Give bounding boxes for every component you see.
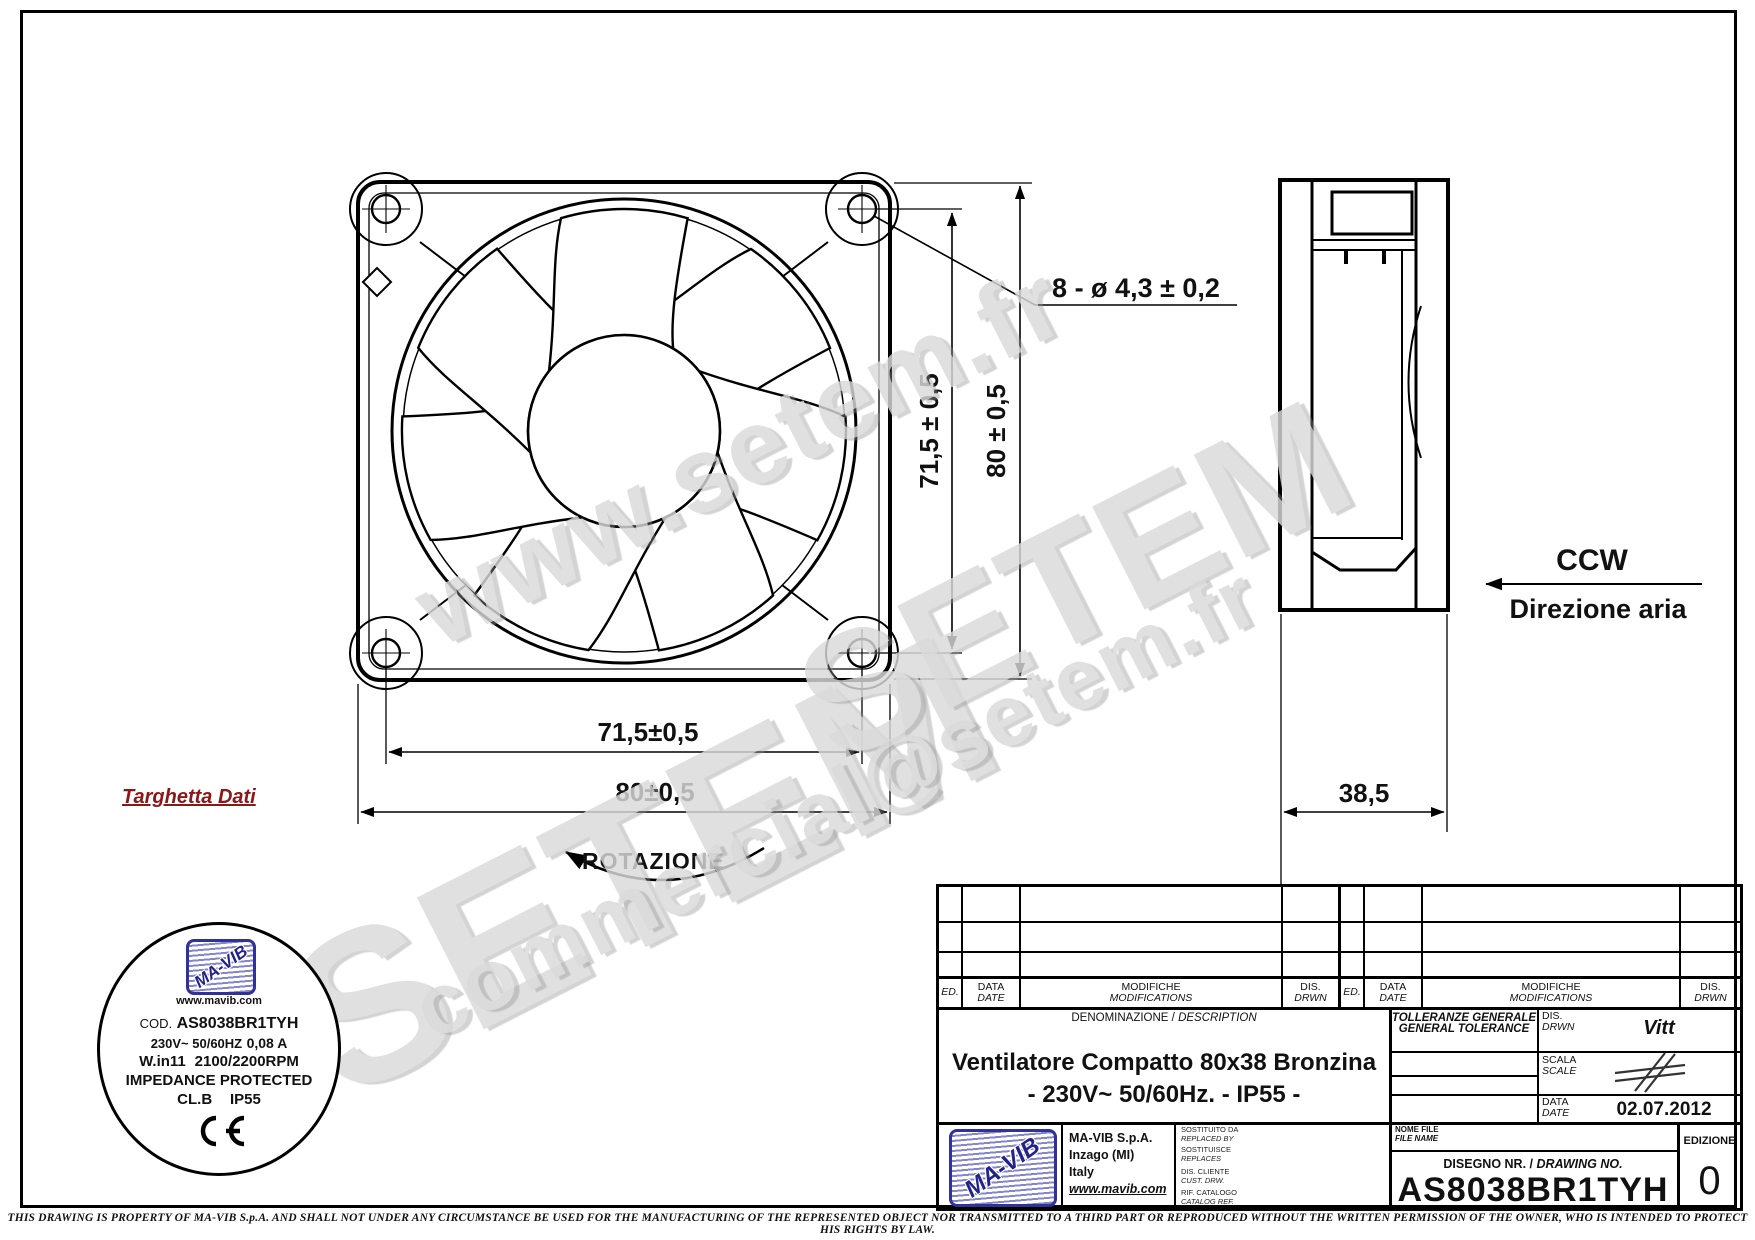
mavib-logo: MA-VIB bbox=[186, 939, 256, 995]
data-plate-caption: Targhetta Dati bbox=[122, 786, 256, 809]
front-view bbox=[350, 156, 898, 689]
drawn-drwn: DRWN bbox=[1542, 1021, 1574, 1033]
plate-voltage: 230V~ 50/60HZ bbox=[151, 1036, 242, 1051]
drawing-no-label-en: DRAWING NO. bbox=[1536, 1157, 1622, 1171]
data-plate: MA-VIB www.mavib.com COD. AS8038BR1TYH 2… bbox=[97, 922, 341, 1176]
rev1-date: DATA DATE bbox=[963, 982, 1019, 1004]
pitch-horizontal-text: 71,5±0,5 bbox=[597, 717, 698, 747]
company-country: Italy bbox=[1069, 1164, 1173, 1181]
plate-speed: 2100/2200RPM bbox=[195, 1053, 299, 1070]
rev1-drwn-en: DRWN bbox=[1294, 992, 1326, 1004]
size-horizontal-text: 80±0,5 bbox=[615, 777, 694, 807]
catalog-label: RIF. CATALOGO CATALOG REF. bbox=[1181, 1189, 1237, 1206]
rev2-dis: DIS. DRWN bbox=[1681, 982, 1740, 1004]
denom-it: DENOMINAZIONE / bbox=[1071, 1012, 1175, 1024]
rev2-date: DATA DATE bbox=[1365, 982, 1421, 1004]
ce-mark-icon bbox=[192, 1113, 250, 1149]
replaces-en: REPLACES bbox=[1181, 1155, 1231, 1164]
filename-label: NOME FILE FILE NAME bbox=[1395, 1125, 1439, 1143]
rev1-mod-en: MODIFICATIONS bbox=[1110, 992, 1193, 1004]
tol-en: GENERAL TOLERANCE bbox=[1399, 1023, 1530, 1035]
plate-ip: IP55 bbox=[230, 1091, 261, 1108]
company-website: www.mavib.com bbox=[1069, 1181, 1173, 1198]
airflow-code-text: CCW bbox=[1556, 544, 1628, 577]
company-address: MA-VIB S.p.A. Inzago (MI) Italy www.mavi… bbox=[1069, 1130, 1173, 1198]
scala-en: SCALE bbox=[1542, 1065, 1576, 1077]
rev2-drwn-en: DRWN bbox=[1694, 992, 1726, 1004]
cust-drw-label: DIS. CLIENTE CUST. DRW. bbox=[1181, 1168, 1229, 1185]
plate-code-row: COD. AS8038BR1TYH bbox=[100, 1015, 338, 1033]
rev2-date-en: DATE bbox=[1379, 992, 1406, 1004]
depth-text: 38,5 bbox=[1339, 778, 1390, 808]
drawing-no-value: AS8038BR1TYH bbox=[1389, 1171, 1677, 1210]
description-title-1: Ventilatore Compatto 80x38 Bronzina bbox=[939, 1049, 1389, 1077]
drawing-no-label: DISEGNO NR. / DRAWING NO. bbox=[1389, 1157, 1677, 1171]
drawing-sheet: 8 - ø 4,3 ± 0,2 71,5 ± 0,5 80 ± 0,5 71,5… bbox=[0, 0, 1755, 1240]
description-title-2: - 230V~ 50/60Hz. - IP55 - bbox=[939, 1081, 1389, 1109]
plate-current: 0,08 A bbox=[247, 1035, 288, 1051]
plate-class-row: CL.B IP55 bbox=[100, 1091, 338, 1109]
plate-power-row: W.in11 2100/2200RPM bbox=[100, 1053, 338, 1071]
rev1-mod: MODIFICHE MODIFICATIONS bbox=[1021, 982, 1281, 1004]
no-scale-icon bbox=[1607, 1051, 1697, 1093]
drawing-no-label-it: DISEGNO NR. / bbox=[1443, 1157, 1533, 1171]
title-block: ED. DATA DATE MODIFICHE MODIFICATIONS DI… bbox=[936, 884, 1743, 1211]
edition-label: EDIZIONE bbox=[1679, 1135, 1740, 1147]
pitch-vertical-text: 71,5 ± 0,5 bbox=[914, 373, 944, 488]
side-view bbox=[1280, 180, 1448, 610]
rev2-mod-en: MODIFICATIONS bbox=[1510, 992, 1593, 1004]
edition-value: 0 bbox=[1679, 1159, 1740, 1204]
rev1-ed: ED. bbox=[939, 987, 961, 998]
scale-label: SCALA SCALE bbox=[1542, 1055, 1592, 1077]
replaced-by-label: SOSTITUITO DA REPLACED BY bbox=[1181, 1126, 1238, 1143]
rev1-dis: DIS. DRWN bbox=[1283, 982, 1338, 1004]
plate-power: W.in11 bbox=[139, 1053, 186, 1070]
date-en: DATE bbox=[1542, 1107, 1569, 1119]
rev2-ed: ED. bbox=[1341, 987, 1363, 998]
company-city: Inzago (MI) bbox=[1069, 1147, 1173, 1164]
rev2-mod: MODIFICHE MODIFICATIONS bbox=[1423, 982, 1679, 1004]
cust-en: CUST. DRW. bbox=[1181, 1177, 1229, 1186]
catalog-en: CATALOG REF. bbox=[1181, 1198, 1237, 1207]
plate-website: www.mavib.com bbox=[100, 995, 338, 1007]
titleblock-mavib-logo: MA-VIB bbox=[949, 1129, 1057, 1207]
plate-class: CL.B bbox=[177, 1091, 212, 1108]
holes-note-text: 8 - ø 4,3 ± 0,2 bbox=[1052, 273, 1220, 303]
denom-en: DESCRIPTION bbox=[1178, 1012, 1257, 1024]
plate-code-label: COD. bbox=[140, 1016, 173, 1031]
plate-voltage-row: 230V~ 50/60HZ 0,08 A bbox=[100, 1035, 338, 1053]
size-vertical-text: 80 ± 0,5 bbox=[981, 384, 1011, 478]
file-it: NOME FILE bbox=[1395, 1125, 1439, 1134]
date-value: 02.07.2012 bbox=[1599, 1099, 1729, 1121]
airflow-label-text: Direzione aria bbox=[1509, 594, 1687, 624]
mavib-logo-text: MA-VIB bbox=[190, 941, 251, 992]
description-header: DENOMINAZIONE / DESCRIPTION bbox=[939, 1013, 1389, 1024]
drawn-label: DIS. DRWN bbox=[1542, 1011, 1592, 1033]
date-label: DATA DATE bbox=[1542, 1097, 1592, 1119]
rotation-text: ROTAZIONE bbox=[582, 848, 725, 874]
titleblock-mavib-logo-text: MA-VIB bbox=[960, 1132, 1046, 1204]
rev1-date-en: DATE bbox=[977, 992, 1004, 1004]
plate-code-value: AS8038BR1TYH bbox=[177, 1015, 299, 1032]
replaced-en: REPLACED BY bbox=[1181, 1135, 1238, 1144]
tolerance-label: TOLLERANZE GENERALE GENERAL TOLERANCE bbox=[1391, 1013, 1537, 1035]
plate-protection: IMPEDANCE PROTECTED bbox=[100, 1072, 338, 1089]
legal-disclaimer: THIS DRAWING IS PROPERTY OF MA-VIB S.p.A… bbox=[0, 1212, 1755, 1236]
drawn-by-value: Vitt bbox=[1599, 1017, 1719, 1040]
company-name: MA-VIB S.p.A. bbox=[1069, 1130, 1173, 1147]
replaces-label: SOSTITUISCE REPLACES bbox=[1181, 1146, 1231, 1163]
file-en: FILE NAME bbox=[1395, 1134, 1439, 1143]
